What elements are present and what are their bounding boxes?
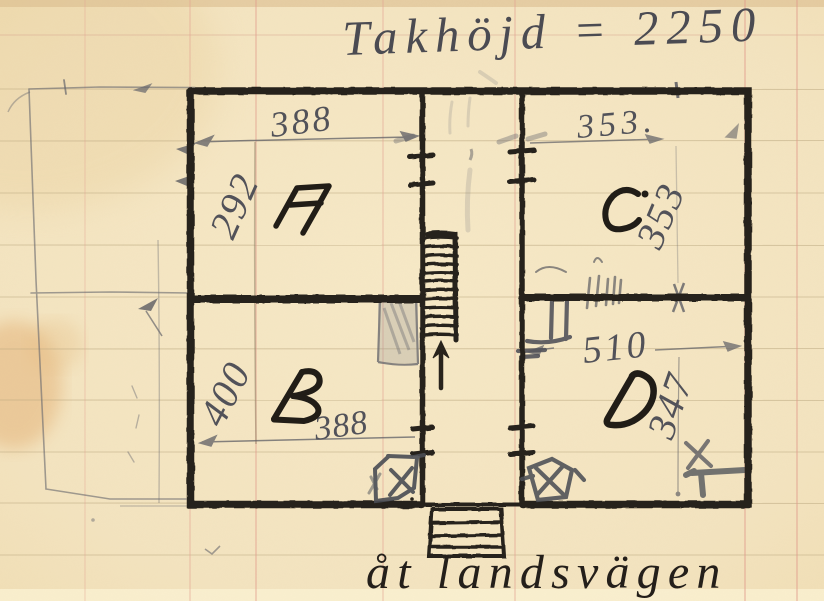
svg-text:388: 388 — [267, 98, 335, 146]
svg-text:åt landsvägen: åt landsvägen — [366, 546, 728, 599]
svg-text:510: 510 — [581, 323, 651, 372]
